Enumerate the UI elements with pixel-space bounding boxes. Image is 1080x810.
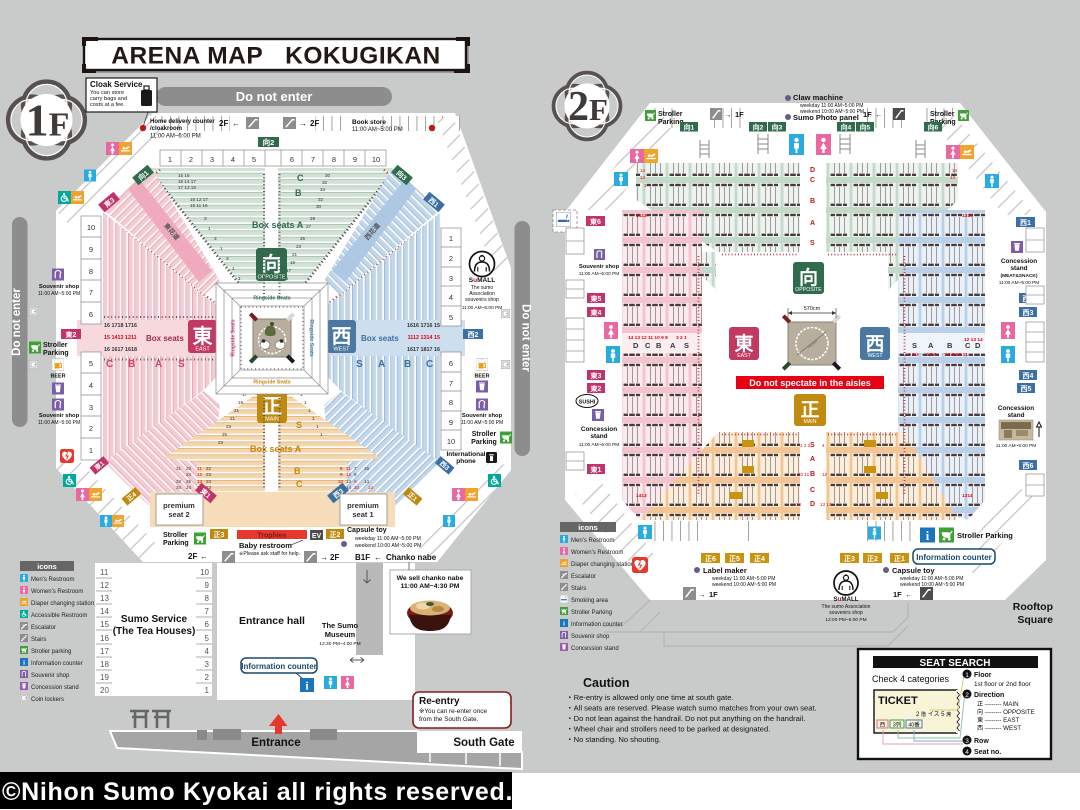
svg-text:19: 19 (290, 260, 296, 265)
svg-text:C: C (426, 359, 433, 370)
svg-text:Ringside Seats: Ringside Seats (308, 319, 314, 356)
svg-text:7: 7 (205, 607, 210, 616)
svg-text:1413: 1413 (636, 213, 647, 219)
svg-text:7: 7 (311, 155, 315, 164)
svg-text:Escalator: Escalator (31, 625, 56, 631)
svg-text:seat 2: seat 2 (168, 510, 189, 519)
svg-text:Box seats A: Box seats A (250, 444, 302, 454)
svg-text:7: 7 (449, 379, 453, 388)
svg-text:16 14 17: 16 14 17 (178, 179, 196, 184)
svg-text:Stairs: Stairs (571, 586, 586, 592)
svg-text:15: 15 (100, 620, 109, 629)
svg-text:Stroller Parking: Stroller Parking (957, 531, 1013, 540)
svg-text:premium: premium (163, 501, 195, 510)
svg-text:Parking: Parking (43, 350, 69, 357)
svg-text:Ringside Seats: Ringside Seats (253, 296, 290, 302)
svg-text:11:00 AM~5:00 PM: 11:00 AM~5:00 PM (996, 443, 1037, 449)
svg-text:ARENA MAP KOKUGIKAN: ARENA MAP KOKUGIKAN (111, 43, 440, 70)
svg-text:8: 8 (332, 155, 336, 164)
svg-text:1617 1817 16: 1617 1817 16 (407, 347, 440, 353)
svg-text:・Wheel chair and strollers nee: ・Wheel chair and strollers need to be pa… (566, 725, 770, 734)
svg-text:S: S (296, 420, 302, 430)
svg-text:B: B (128, 359, 135, 370)
svg-text:We sell chanko nabe: We sell chanko nabe (397, 575, 464, 582)
svg-text:13 14: 13 14 (820, 502, 832, 507)
svg-text:Souvenir shop: Souvenir shop (462, 413, 503, 419)
svg-text:←: ← (374, 553, 382, 562)
svg-text:D: D (810, 167, 815, 174)
svg-text:9: 9 (354, 479, 357, 484)
svg-text:6: 6 (290, 155, 294, 164)
svg-text:7: 7 (89, 288, 93, 297)
svg-text:Men's Restroom: Men's Restroom (31, 577, 75, 583)
svg-text:S: S (810, 240, 815, 247)
svg-text:12:30 PM~4:00 PM: 12:30 PM~4:00 PM (319, 641, 360, 647)
svg-text:34: 34 (176, 485, 182, 490)
svg-text:25: 25 (186, 479, 192, 484)
svg-text:→: → (299, 119, 307, 128)
svg-text:6: 6 (205, 620, 210, 629)
svg-text:16 1617 1618: 16 1617 1618 (104, 347, 137, 353)
svg-text:3: 3 (205, 660, 210, 669)
svg-text:1: 1 (946, 183, 949, 188)
svg-text:10: 10 (354, 485, 360, 490)
svg-text:B: B (947, 341, 953, 350)
svg-text:西: 西 (865, 334, 884, 355)
svg-text:C: C (645, 341, 651, 350)
svg-text:premium: premium (347, 501, 379, 510)
svg-text:10: 10 (372, 155, 380, 164)
svg-text:Seat no.: Seat no. (974, 749, 1001, 756)
svg-text:S: S (912, 341, 917, 350)
svg-text:2: 2 (449, 254, 453, 263)
svg-text:2: 2 (189, 155, 193, 164)
svg-text:Escalator: Escalator (571, 574, 596, 580)
svg-text:西4: 西4 (1023, 372, 1034, 380)
svg-text:Baby restroom: Baby restroom (239, 541, 292, 550)
svg-text:8: 8 (449, 398, 453, 407)
svg-text:8: 8 (354, 472, 357, 477)
svg-text:1: 1 (308, 408, 311, 413)
svg-text:Sumo Photo panel: Sumo Photo panel (793, 113, 859, 122)
svg-text:12: 12 (197, 472, 203, 477)
svg-text:※Please ask staff for help.: ※Please ask staff for help. (239, 551, 300, 557)
svg-text:C: C (810, 177, 815, 184)
svg-text:from the South Gate.: from the South Gate. (419, 716, 479, 723)
svg-text:Women's Restroom: Women's Restroom (571, 550, 623, 556)
svg-text:西6: 西6 (1023, 462, 1034, 470)
svg-text:4: 4 (231, 155, 235, 164)
svg-text:18: 18 (100, 660, 109, 669)
svg-text:Stroller parking: Stroller parking (31, 649, 71, 655)
svg-text:3: 3 (210, 155, 214, 164)
svg-text:Do not enter: Do not enter (236, 89, 313, 104)
svg-text:1: 1 (304, 400, 307, 405)
svg-text:Direction: Direction (974, 692, 1004, 699)
svg-text:11:00 AM~5:00 PM: 11:00 AM~5:00 PM (352, 127, 403, 133)
svg-text:Ringside Seats: Ringside Seats (231, 319, 237, 356)
svg-text:5: 5 (252, 155, 256, 164)
svg-text:西1: 西1 (1020, 219, 1031, 227)
svg-text:OPPOSITE: OPPOSITE (795, 287, 822, 293)
svg-text:Museum: Museum (325, 630, 356, 639)
svg-text:→: → (698, 590, 706, 599)
svg-text:Information counter: Information counter (241, 662, 317, 671)
svg-text:Stroller: Stroller (472, 431, 497, 438)
svg-text:向 -------- OPPOSITE: 向 -------- OPPOSITE (977, 708, 1035, 716)
svg-text:Stroller: Stroller (163, 532, 188, 539)
svg-text:1F: 1F (709, 590, 718, 599)
svg-text:正3: 正3 (844, 555, 855, 563)
svg-text:東4: 東4 (591, 308, 602, 317)
svg-text:西2: 西2 (468, 331, 479, 339)
svg-text:1st floor or 2nd floor: 1st floor or 2nd floor (974, 681, 1032, 688)
svg-text:30: 30 (316, 204, 322, 209)
svg-text:15 11 16: 15 11 16 (190, 203, 208, 208)
svg-text:Souvenir shop: Souvenir shop (579, 264, 620, 270)
svg-text:A: A (928, 341, 934, 350)
svg-text:11:00 AM~5:00 PM: 11:00 AM~5:00 PM (38, 420, 80, 426)
svg-text:(MEAT&SNACK): (MEAT&SNACK) (1001, 273, 1038, 279)
svg-text:570cm: 570cm (804, 306, 821, 312)
svg-text:6: 6 (89, 310, 93, 319)
svg-text:・Do not lean against the handr: ・Do not lean against the handrail. Do no… (566, 714, 805, 723)
svg-text:9: 9 (353, 155, 357, 164)
svg-text:Do not spectate in the aisles: Do not spectate in the aisles (749, 378, 871, 388)
svg-text:costs at a fee.: costs at a fee. (90, 102, 125, 108)
svg-text:Information counter: Information counter (916, 553, 992, 562)
svg-text:正6: 正6 (705, 555, 716, 563)
svg-text:Capsule toy: Capsule toy (892, 566, 935, 575)
svg-text:A: A (378, 359, 385, 370)
svg-text:Chanko nabe: Chanko nabe (386, 553, 437, 562)
svg-text:1: 1 (232, 266, 235, 271)
svg-text:12: 12 (346, 472, 352, 477)
svg-text:Diaper changing station: Diaper changing station (31, 601, 94, 607)
svg-text:South Gate: South Gate (453, 737, 514, 749)
svg-text:・No standing. No shouting.: ・No standing. No shouting. (566, 735, 661, 744)
svg-text:1: 1 (316, 424, 319, 429)
svg-text:16 12 17: 16 12 17 (190, 197, 208, 202)
svg-text:WEST: WEST (334, 347, 351, 353)
svg-text:D: D (633, 341, 639, 350)
svg-text:11:00 AM~5:00 PM: 11:00 AM~5:00 PM (579, 442, 620, 448)
svg-text:32: 32 (318, 197, 324, 202)
svg-text:Label maker: Label maker (703, 566, 747, 575)
svg-text:13: 13 (346, 479, 352, 484)
svg-text:Stroller Parking: Stroller Parking (571, 610, 612, 616)
svg-text:11: 11 (346, 466, 351, 471)
svg-text:30: 30 (325, 173, 331, 178)
svg-text:Box seats A: Box seats A (252, 220, 304, 230)
svg-text:西 -------- WEST: 西 -------- WEST (977, 725, 1021, 732)
svg-text:13: 13 (640, 175, 646, 180)
svg-text:S: S (178, 359, 185, 370)
svg-text:Do not enter: Do not enter (520, 304, 532, 372)
svg-text:1616 1716 15: 1616 1716 15 (407, 323, 440, 329)
svg-text:東: 東 (193, 325, 213, 348)
svg-text:正2: 正2 (330, 531, 341, 539)
svg-text:40番: 40番 (908, 722, 920, 729)
svg-text:11:00 AM~5:00 PM: 11:00 AM~5:00 PM (462, 305, 503, 311)
svg-text:B1F: B1F (355, 553, 370, 562)
svg-text:16: 16 (364, 466, 370, 471)
svg-text:MAIN: MAIN (265, 417, 279, 423)
svg-text:東2: 東2 (591, 384, 602, 393)
svg-text:10 11: 10 11 (798, 472, 810, 477)
svg-text:Stroller: Stroller (658, 111, 683, 118)
svg-text:23: 23 (206, 472, 212, 477)
svg-text:5: 5 (205, 634, 210, 643)
svg-text:向2: 向2 (263, 137, 275, 147)
svg-text:23: 23 (218, 440, 224, 445)
svg-text:4: 4 (822, 443, 825, 448)
svg-text:SUSHI: SUSHI (579, 400, 596, 406)
svg-text:11:00 AM~4:30 PM: 11:00 AM~4:30 PM (401, 583, 460, 590)
svg-text:23: 23 (186, 466, 192, 471)
svg-text:3 2 1: 3 2 1 (676, 335, 687, 341)
svg-text:32: 32 (322, 180, 328, 185)
svg-text:27: 27 (306, 224, 312, 229)
svg-text:Men's Restroom: Men's Restroom (571, 538, 615, 544)
svg-text:33: 33 (176, 479, 182, 484)
svg-text:Entrance hall: Entrance hall (239, 615, 305, 627)
svg-text:4: 4 (205, 647, 210, 656)
svg-text:→: → (724, 110, 732, 119)
svg-text:11:00 AM~5:00 PM: 11:00 AM~5:00 PM (579, 271, 620, 277)
svg-text:2: 2 (965, 692, 969, 699)
svg-text:3列: 3列 (893, 721, 902, 729)
svg-text:正5: 正5 (729, 555, 740, 563)
svg-text:/cloakroom: /cloakroom (150, 126, 182, 132)
svg-text:東3: 東3 (591, 371, 602, 380)
svg-text:西3: 西3 (1023, 309, 1034, 317)
svg-text:SuMALL: SuMALL (469, 277, 495, 284)
svg-text:Concession: Concession (1001, 258, 1037, 265)
svg-text:31: 31 (176, 466, 182, 471)
svg-text:Stroller: Stroller (43, 342, 68, 349)
svg-text:weekend 10:00 AM~5:00 PM: weekend 10:00 AM~5:00 PM (355, 543, 421, 549)
svg-text:3: 3 (449, 274, 453, 283)
svg-text:stand: stand (1010, 265, 1027, 272)
svg-text:Stroller: Stroller (930, 111, 955, 118)
svg-text:8: 8 (205, 594, 210, 603)
svg-text:2 階 イス 5 席: 2 階 イス 5 席 (916, 711, 951, 718)
svg-text:1112 1314 15: 1112 1314 15 (408, 335, 440, 341)
svg-text:20: 20 (100, 686, 109, 695)
svg-text:1F: 1F (863, 110, 872, 119)
svg-text:Smoking area: Smoking area (571, 598, 609, 604)
svg-text:29: 29 (310, 216, 316, 221)
svg-text:Concession: Concession (581, 426, 617, 433)
svg-text:向6: 向6 (928, 123, 939, 132)
svg-text:17: 17 (100, 647, 109, 656)
svg-text:17 13 18: 17 13 18 (178, 185, 196, 190)
svg-text:C: C (810, 487, 815, 494)
svg-text:14: 14 (100, 607, 109, 616)
svg-text:1F: 1F (735, 110, 744, 119)
svg-text:1F: 1F (893, 590, 902, 599)
svg-text:©Nihon Sumo Kyokai all rights: ©Nihon Sumo Kyokai all rights reserved. (2, 778, 513, 806)
svg-text:The Sumo: The Sumo (322, 621, 359, 630)
svg-text:souvenirs shop: souvenirs shop (465, 297, 499, 303)
svg-text:stand: stand (1007, 412, 1024, 419)
svg-text:Diaper changing station: Diaper changing station (571, 562, 634, 568)
svg-text:21: 21 (230, 416, 236, 421)
svg-text:東6: 東6 (590, 217, 601, 226)
svg-text:12:00 PM~5:00 PM: 12:00 PM~5:00 PM (825, 617, 866, 623)
svg-text:Souvenir shop: Souvenir shop (39, 413, 80, 419)
svg-text:Claw machine: Claw machine (793, 93, 843, 102)
svg-text:22: 22 (206, 466, 212, 471)
svg-text:2: 2 (205, 673, 210, 682)
svg-text:東: 東 (734, 332, 753, 355)
svg-text:11:00 AM~5:00 PM: 11:00 AM~5:00 PM (461, 420, 503, 426)
svg-text:Home delivery counter: Home delivery counter (150, 119, 215, 125)
svg-text:B: B (810, 198, 815, 205)
svg-text:Souvenir shop: Souvenir shop (571, 634, 610, 640)
svg-text:(The Tea Houses): (The Tea Houses) (113, 626, 196, 637)
svg-text:Check 4 categories: Check 4 categories (872, 674, 950, 684)
svg-text:4: 4 (965, 749, 969, 756)
svg-text:A: A (810, 456, 815, 463)
svg-text:B: B (295, 188, 302, 198)
svg-text:1: 1 (238, 276, 241, 281)
svg-text:3: 3 (965, 738, 969, 745)
svg-text:Trophies: Trophies (257, 533, 286, 540)
svg-text:B: B (656, 341, 662, 350)
svg-text:1314: 1314 (962, 213, 973, 219)
svg-text:Souvenir shop: Souvenir shop (39, 284, 80, 290)
svg-text:2F: 2F (219, 119, 228, 128)
svg-text:Coin lockers: Coin lockers (31, 697, 64, 703)
svg-text:icons: icons (578, 523, 598, 532)
svg-text:25: 25 (300, 236, 306, 241)
svg-text:西: 西 (880, 722, 886, 729)
svg-text:向3: 向3 (772, 123, 783, 132)
svg-text:11:00 AM~5:00 PM: 11:00 AM~5:00 PM (999, 280, 1040, 286)
svg-text:Box seats: Box seats (361, 334, 399, 343)
svg-text:WEST: WEST (868, 353, 884, 359)
svg-text:S: S (356, 359, 363, 370)
svg-text:EAST: EAST (195, 347, 210, 353)
svg-text:23: 23 (226, 424, 232, 429)
svg-text:向: 向 (799, 266, 818, 289)
svg-text:9: 9 (205, 581, 210, 590)
svg-text:Rooftop: Rooftop (1013, 601, 1053, 613)
svg-text:A: A (155, 359, 162, 370)
svg-text:Concession stand: Concession stand (571, 646, 619, 652)
svg-text:2F: 2F (310, 119, 319, 128)
svg-text:4: 4 (89, 381, 93, 390)
svg-text:4 5 6: 4 5 6 (926, 352, 937, 358)
svg-text:25: 25 (222, 432, 228, 437)
svg-text:16: 16 (100, 634, 109, 643)
svg-text:Floor: Floor (974, 672, 992, 679)
svg-text:15 16: 15 16 (178, 173, 190, 178)
svg-text:13: 13 (100, 594, 109, 603)
svg-text:←: ← (232, 119, 240, 128)
svg-text:東1: 東1 (591, 465, 602, 474)
svg-text:23: 23 (296, 244, 302, 249)
svg-text:9: 9 (340, 472, 343, 477)
svg-text:S: S (810, 442, 815, 449)
svg-text:C: C (106, 359, 113, 370)
svg-text:11: 11 (197, 466, 202, 471)
svg-text:1: 1 (208, 226, 211, 231)
svg-text:12: 12 (822, 472, 828, 477)
svg-text:西: 西 (332, 326, 352, 348)
svg-text:13: 13 (950, 175, 956, 180)
svg-text:向4: 向4 (841, 123, 852, 132)
svg-text:14: 14 (640, 168, 646, 173)
svg-text:※You can re-enter once: ※You can re-enter once (419, 708, 487, 715)
svg-text:EAST: EAST (737, 353, 751, 359)
svg-text:1: 1 (449, 234, 453, 243)
svg-text:Parking: Parking (471, 439, 497, 446)
svg-text:正: 正 (800, 400, 819, 421)
svg-text:1 2 3: 1 2 3 (800, 443, 811, 448)
svg-text:24: 24 (206, 479, 212, 484)
svg-text:weekday 11:00 AM~5:00 PM: weekday 11:00 AM~5:00 PM (355, 536, 421, 542)
svg-text:Information counter: Information counter (571, 622, 623, 628)
svg-text:BEER: BEER (475, 374, 490, 380)
svg-text:・All seats are reserved. Pleas: ・All seats are reserved. Please watch su… (566, 704, 817, 713)
svg-text:B: B (810, 471, 815, 478)
svg-text:西5: 西5 (1021, 385, 1032, 393)
svg-text:12 13 14: 12 13 14 (964, 337, 983, 343)
svg-text:正4: 正4 (754, 555, 765, 563)
svg-text:BEER: BEER (51, 374, 66, 380)
svg-text:8: 8 (89, 267, 93, 276)
svg-text:34: 34 (320, 187, 326, 192)
svg-text:SEAT SEARCH: SEAT SEARCH (920, 658, 991, 669)
svg-text:5: 5 (89, 359, 93, 368)
svg-text:向5: 向5 (860, 123, 871, 132)
svg-text:Ringside Seats: Ringside Seats (253, 380, 290, 386)
svg-text:正1: 正1 (894, 555, 905, 563)
svg-text:24: 24 (186, 485, 192, 490)
svg-text:S: S (684, 341, 689, 350)
svg-text:Book store: Book store (352, 119, 386, 126)
svg-text:A: A (810, 220, 815, 227)
svg-text:1 2 3: 1 2 3 (908, 352, 919, 358)
svg-text:1: 1 (965, 672, 969, 679)
svg-text:Stairs: Stairs (31, 637, 46, 643)
svg-text:Square: Square (1017, 614, 1053, 626)
svg-text:・Re-entry is allowed only one: ・Re-entry is allowed only one time at so… (566, 693, 734, 702)
svg-text:3: 3 (226, 256, 229, 261)
svg-text:16 1718 1716: 16 1718 1716 (104, 323, 137, 329)
svg-text:向2: 向2 (753, 123, 764, 132)
svg-text:14: 14 (952, 168, 958, 173)
svg-text:9: 9 (449, 418, 453, 427)
svg-text:東 -------- EAST: 東 -------- EAST (977, 716, 1019, 724)
svg-text:10: 10 (447, 437, 455, 446)
svg-text:B: B (404, 359, 411, 370)
svg-text:SuMALL: SuMALL (833, 596, 858, 603)
svg-text:14: 14 (364, 479, 370, 484)
svg-text:B: B (294, 466, 301, 476)
svg-text:Concession stand: Concession stand (31, 685, 79, 691)
svg-text:1: 1 (320, 432, 323, 437)
svg-text:11:00 AM~5:00 PM: 11:00 AM~5:00 PM (38, 291, 80, 297)
svg-text:Box seats: Box seats (146, 334, 184, 343)
svg-text:1: 1 (644, 183, 647, 188)
svg-text:souvenirs shop: souvenirs shop (829, 610, 863, 616)
svg-text:Cloak Service: Cloak Service (90, 80, 143, 89)
svg-text:phone: phone (456, 458, 476, 465)
